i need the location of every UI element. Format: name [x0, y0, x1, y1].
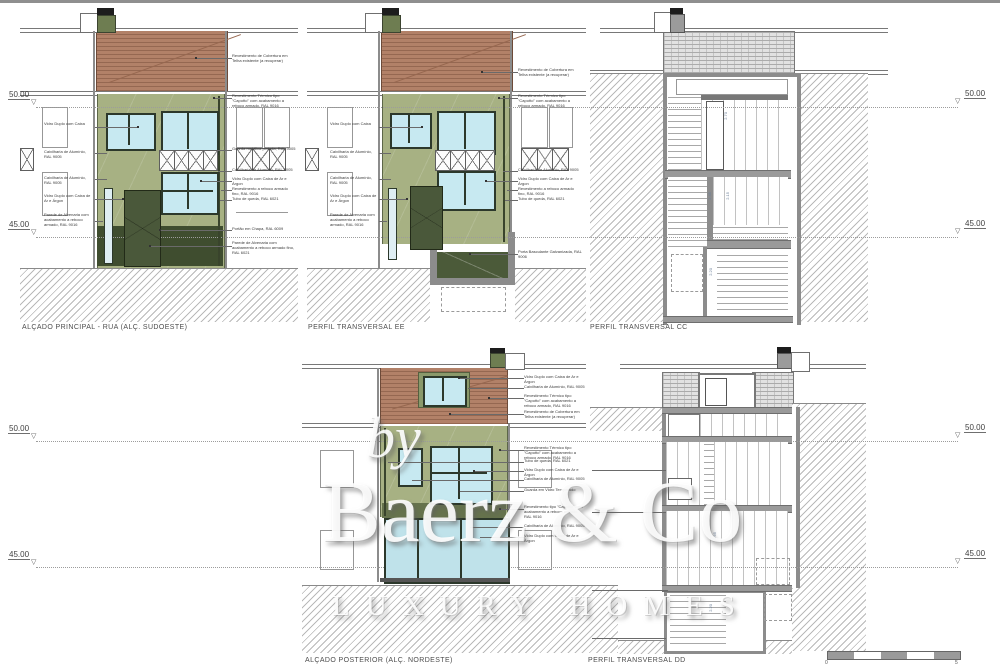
leader-dot — [122, 198, 124, 200]
annotation: Portão em Chapa, RAL 6009 — [232, 227, 296, 232]
leader-line — [201, 181, 232, 182]
leader-dot — [149, 245, 151, 247]
leader-line — [592, 638, 666, 639]
leader-dot — [159, 229, 161, 231]
elevation-marker: 45.00 — [964, 219, 986, 229]
pit-slab — [430, 278, 515, 285]
entrance-door — [410, 186, 443, 250]
elevation-triangle-icon: ▽ — [955, 228, 960, 235]
window — [437, 111, 496, 155]
elevation-line-50-top — [36, 107, 958, 108]
leader-line — [196, 58, 232, 59]
clerestory-window — [676, 79, 788, 95]
leader-line — [95, 221, 103, 222]
leader-line — [214, 98, 232, 99]
neighbour-window — [236, 107, 263, 148]
annotation: Caixilharia de Alumínio, RAL 9005 — [44, 176, 94, 186]
leader-line — [221, 190, 232, 191]
annotation: Caixilharia de Alumínio, RAL 9005 — [330, 176, 378, 186]
chimney-cap — [670, 8, 683, 14]
dormer-window-section — [705, 378, 727, 406]
leader-dot — [498, 97, 500, 99]
leader-line — [482, 72, 518, 73]
elevation-triangle-icon: ▽ — [31, 99, 36, 106]
window — [106, 113, 156, 151]
leader-line — [218, 171, 232, 172]
elevation-triangle-icon: ▽ — [31, 229, 36, 236]
annotation: Guarda metálica pintada, RAL 9005 — [232, 147, 296, 152]
leader-line — [95, 127, 138, 128]
party-wall-line — [620, 364, 866, 369]
neighbour-railing — [305, 148, 319, 171]
leader-line — [499, 98, 518, 99]
leader-line — [468, 388, 524, 389]
leader-dot — [485, 180, 487, 182]
annotation: Porta Basculante Galvanizada, RAL 9006 — [518, 250, 582, 260]
roof-brick — [96, 31, 228, 91]
downpipe — [503, 96, 505, 242]
ground-hatch — [20, 268, 298, 322]
window — [390, 113, 432, 149]
annotation: Revestimento de Cobertura em Telha exist… — [524, 410, 586, 420]
scale-bar — [827, 651, 961, 660]
elevation-triangle-icon: ▽ — [955, 98, 960, 105]
elevation-marker: 45.00 — [8, 550, 30, 560]
leader-dot — [488, 397, 490, 399]
attic-room — [668, 414, 700, 438]
leader-dot — [406, 198, 408, 200]
annotation: Parede de Alvenaria com acabamento a reb… — [44, 213, 94, 227]
elevation-marker: 45.00 — [8, 220, 30, 230]
chimney-vent — [791, 352, 810, 372]
base-slab — [663, 316, 793, 323]
attic-slab — [662, 407, 792, 414]
annotation: Revestimento Térmico tipo "Capotto" com … — [232, 94, 296, 108]
watermark-tagline: LUXURY HOMES — [332, 590, 751, 623]
window-mullion — [442, 378, 444, 401]
leader-dot — [213, 97, 215, 99]
scale-bar-end: 5 — [955, 660, 958, 666]
window — [161, 172, 219, 215]
ground-hatch — [793, 73, 868, 322]
threshold — [380, 578, 510, 582]
leader-line — [220, 200, 232, 201]
leader-line — [150, 246, 232, 247]
chimney-body — [670, 14, 685, 33]
neighbour-window — [264, 107, 290, 148]
leader-line — [379, 199, 407, 200]
leader-line — [95, 179, 107, 180]
leader-dot — [200, 180, 202, 182]
neighbour-window — [549, 107, 573, 148]
chimney-body — [382, 15, 401, 33]
leader-line — [459, 378, 524, 379]
annotation: Revestimento de Cobertura em Telha exist… — [518, 68, 582, 78]
elevation-marker: 50.00 — [964, 423, 986, 433]
leader-line — [95, 153, 107, 154]
garage-door — [124, 190, 161, 267]
basement-dashed — [764, 594, 792, 621]
leader-dot — [499, 449, 501, 451]
annotation: Revestimento de Cobertura em Telha exist… — [232, 54, 296, 64]
wall-framing — [713, 177, 788, 225]
leader-line — [486, 181, 518, 182]
ground-hatch — [590, 407, 662, 431]
elevation-triangle-icon: ▽ — [31, 433, 36, 440]
leader-dot — [449, 413, 451, 415]
leader-dot — [458, 377, 460, 379]
pit-dashed-outline — [441, 287, 506, 312]
dormer-window — [423, 376, 467, 407]
leader-line — [505, 200, 518, 201]
elevation-triangle-icon: ▽ — [31, 559, 36, 566]
leader-line — [379, 221, 387, 222]
wall-framing — [700, 414, 788, 436]
chimney-body — [97, 15, 116, 33]
roof-section — [752, 372, 794, 409]
leader-line — [489, 398, 524, 399]
door-dashed — [756, 558, 790, 585]
ground-hatch — [515, 268, 586, 322]
annotation: Vidro Duplo com Caixa — [330, 122, 378, 127]
dimension: 2.45 — [707, 192, 712, 200]
balcony-railing — [159, 150, 218, 171]
annotation: Vidro Duplo com Caixa — [44, 122, 94, 127]
chimney-cap — [490, 348, 505, 353]
elevation-line-45-top — [36, 237, 958, 238]
elevation-marker: 50.00 — [964, 89, 986, 99]
dimension: 2.15 — [725, 192, 730, 200]
watermark-by: by — [366, 404, 421, 471]
balcony-railing — [435, 150, 495, 171]
stair-section — [717, 250, 788, 310]
leader-dot — [469, 253, 471, 255]
leader-line — [379, 179, 391, 180]
leader-line — [503, 171, 518, 172]
elevation-line-50-bottom — [36, 441, 958, 442]
annotation: Caixilharia de Alumínio, RAL 9005 — [330, 150, 378, 160]
neighbour-window — [42, 107, 68, 148]
window — [437, 171, 496, 211]
window-transom — [163, 190, 213, 192]
annotation: Caixilharia de Alumínio, RAL 9005 — [524, 385, 586, 390]
watermark-brand: Baerz & Co — [322, 462, 742, 563]
leader-line — [160, 230, 232, 231]
window-mullion — [408, 115, 410, 143]
sheet-top-border — [0, 0, 1000, 3]
chimney-cap — [97, 8, 114, 15]
leader-line — [217, 150, 232, 151]
leader-dot — [421, 126, 423, 128]
neighbour-railing — [20, 148, 34, 171]
leader-dot — [195, 57, 197, 59]
party-wall — [510, 31, 512, 232]
elevation-marker: 45.00 — [964, 549, 986, 559]
door-leaf — [706, 101, 724, 170]
drawing-title: ALÇADO PRINCIPAL - RUA (ALÇ. SUDOESTE) — [22, 324, 187, 331]
dimension: 2.20 — [708, 268, 713, 276]
window-mullion — [128, 115, 130, 145]
leader-line — [450, 414, 524, 415]
neighbour-window — [521, 107, 548, 148]
annotation: Parede de Alvenaria com acabamento a reb… — [232, 241, 296, 255]
chimney-cap — [777, 347, 791, 353]
leader-dot — [481, 71, 483, 73]
annotation: Parede de Alvenaria com acabamento a reb… — [330, 213, 378, 227]
roof-brick — [381, 31, 513, 91]
roof-section — [663, 31, 795, 74]
annotation: Vidro Duplo com Caixa de Ar e Árgon — [330, 194, 378, 204]
drawing-title: PERFIL TRANSVERSAL DD — [588, 657, 686, 664]
leader-line — [470, 254, 518, 255]
basement-dashed — [671, 254, 703, 292]
annotation: Vidro Duplo com Caixa de Ar e Árgon — [44, 194, 94, 204]
elevation-marker: 50.00 — [8, 424, 30, 434]
window-mullion — [464, 113, 466, 149]
interior-wall — [703, 247, 707, 316]
drawing-title: PERFIL TRANSVERSAL EE — [308, 324, 405, 331]
window-mullion — [464, 173, 466, 205]
ground-hatch — [590, 73, 663, 322]
neighbour-window — [327, 107, 353, 148]
party-wall — [378, 31, 380, 268]
floor-slab — [707, 240, 791, 249]
chimney-cap — [382, 8, 399, 15]
ground-hatch — [307, 268, 430, 322]
architectural-sheet: 50.00 ▽ 45.00 ▽ 50.00 ▽ 45.00 ▽ 50.00 ▽ … — [0, 0, 1000, 670]
chimney-vent — [505, 353, 525, 370]
window — [161, 111, 219, 155]
elevation-marker: 50.00 — [8, 90, 30, 100]
leader-line — [379, 127, 422, 128]
annotation: Tubo de queda, RAL 6021 — [232, 197, 296, 202]
window-mullion — [187, 113, 189, 149]
annotation: Caixilharia de Alumínio, RAL 9005 — [44, 150, 94, 160]
annotation: Caixilharia de Alumínio, RAL 9005 — [518, 168, 582, 173]
drawing-title: ALÇADO POSTERIOR (ALÇ. NORDESTE) — [305, 657, 453, 664]
leader-line — [95, 199, 123, 200]
leader-line — [500, 450, 524, 451]
leader-line — [379, 153, 391, 154]
drawing-title: PERFIL TRANSVERSAL CC — [590, 324, 688, 331]
annotation: Revestimento Térmico tipo "Capotto" com … — [518, 94, 582, 108]
neighbour-sill-line — [236, 212, 288, 215]
scale-bar-start: 0 — [825, 660, 828, 666]
annotation: Revestimento Térmico tipo "Capotto" com … — [524, 394, 586, 408]
annotation: Tubo de queda, RAL 6021 — [518, 197, 582, 202]
leader-line — [507, 190, 518, 191]
elevation-triangle-icon: ▽ — [955, 432, 960, 439]
dimension: 2.70 — [723, 112, 728, 120]
annotation: Caixilharia de Alumínio, RAL 9005 — [232, 168, 296, 173]
pit-ramp — [437, 252, 508, 278]
roof-section — [662, 372, 700, 409]
elevation-triangle-icon: ▽ — [955, 558, 960, 565]
leader-dot — [137, 126, 139, 128]
